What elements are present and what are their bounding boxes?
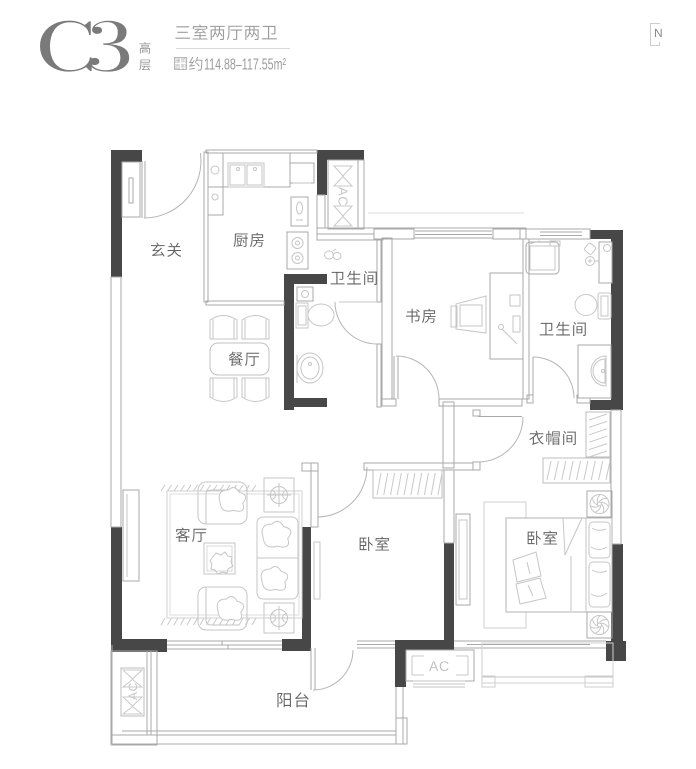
svg-text:114.88–117.55m²: 114.88–117.55m² bbox=[204, 57, 286, 74]
